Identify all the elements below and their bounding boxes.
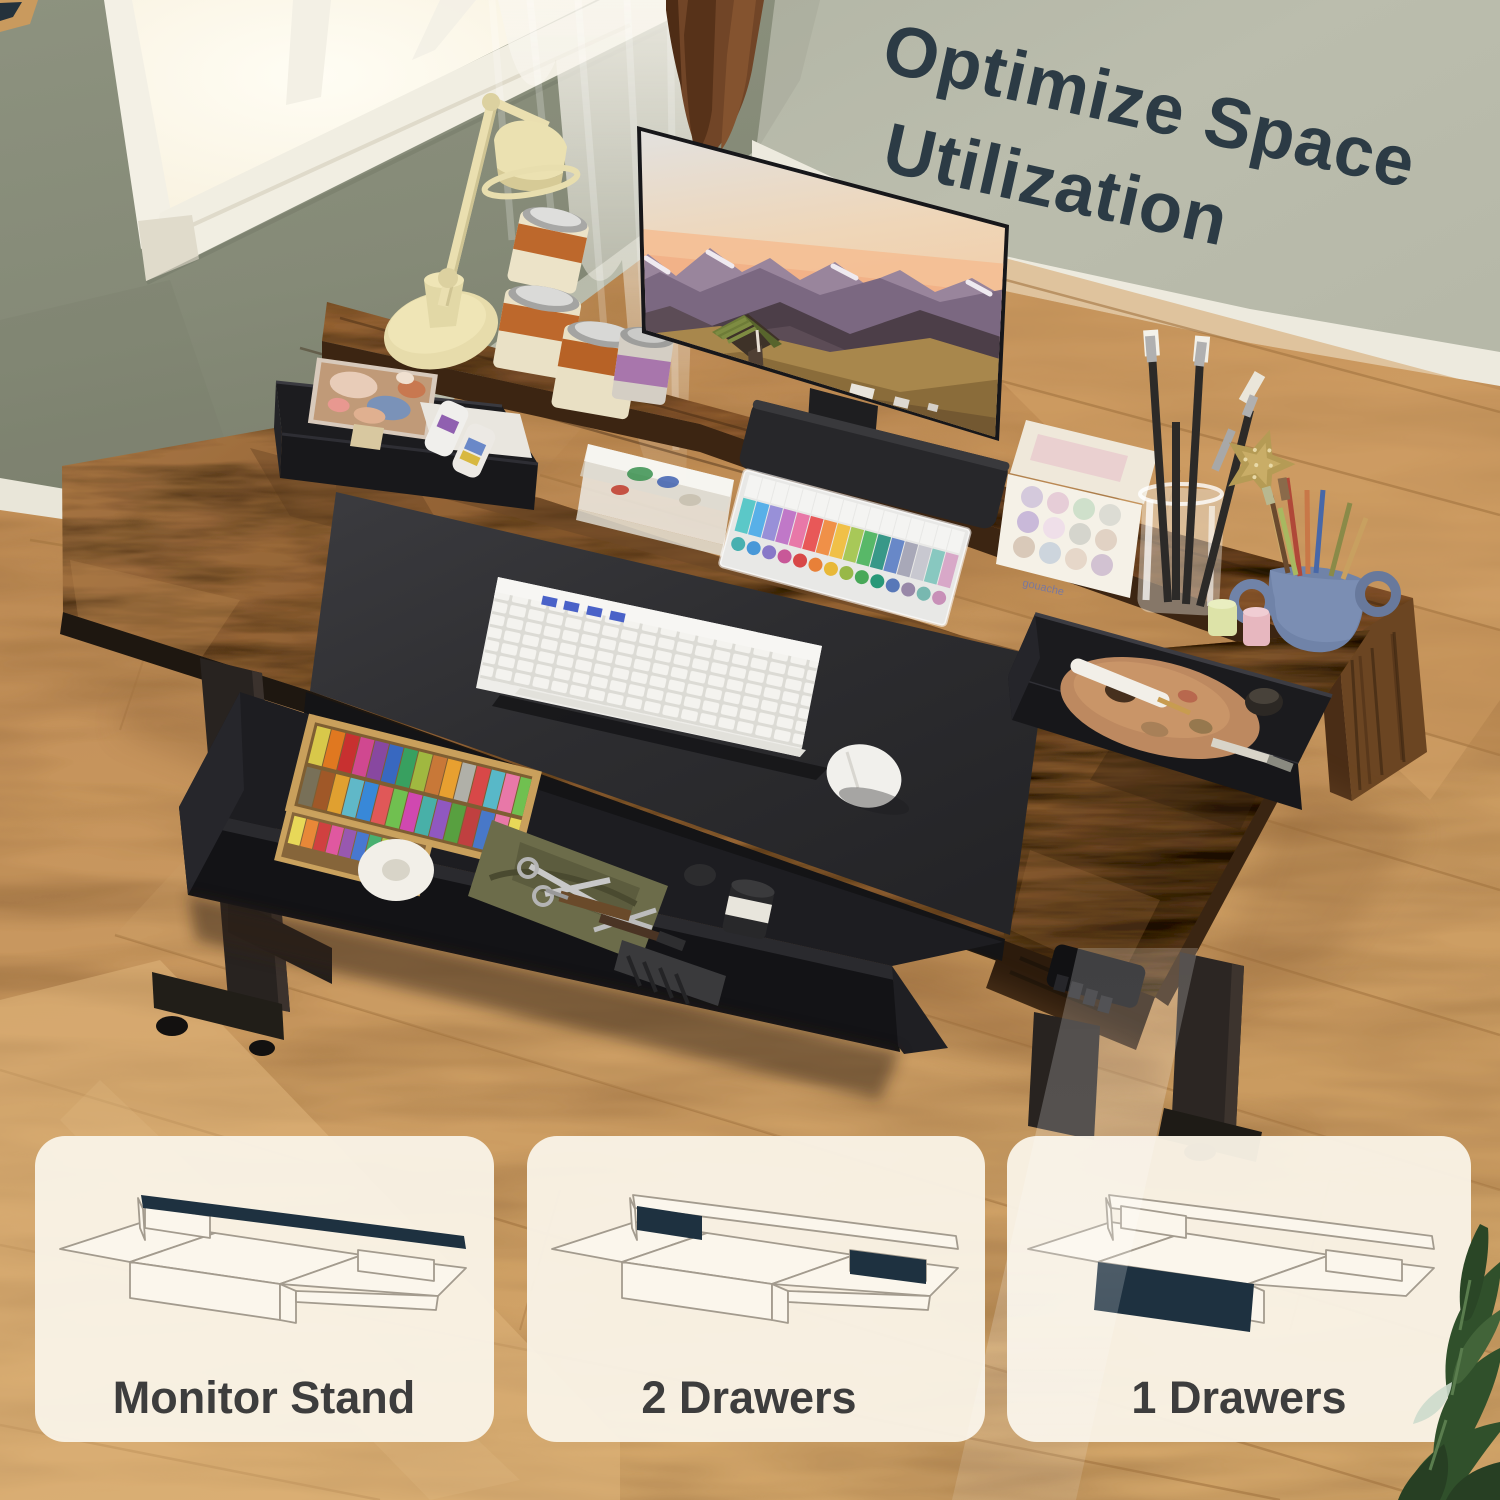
svg-text:2 Drawers: 2 Drawers	[641, 1372, 856, 1423]
svg-text:1 Drawers: 1 Drawers	[1131, 1372, 1346, 1423]
svg-text:Monitor Stand: Monitor Stand	[113, 1372, 415, 1423]
